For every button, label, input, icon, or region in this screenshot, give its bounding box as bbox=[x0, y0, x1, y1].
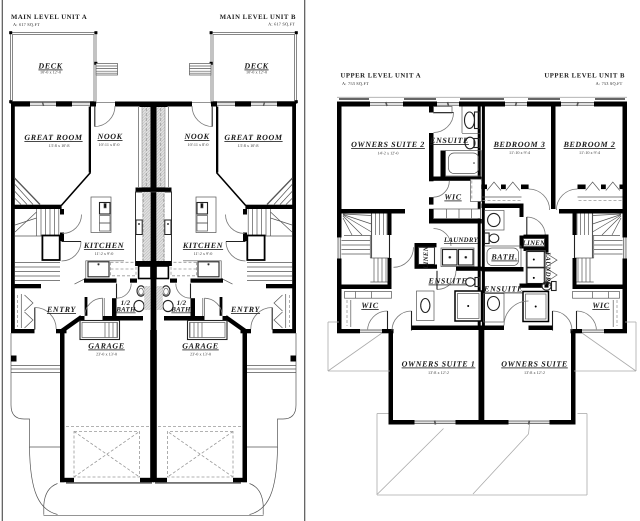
svg-text:ENTRY: ENTRY bbox=[46, 305, 77, 314]
svg-text:GREAT ROOM: GREAT ROOM bbox=[24, 133, 83, 142]
svg-text:GARAGE: GARAGE bbox=[88, 342, 125, 351]
svg-text:OWNERS SUITE: OWNERS SUITE bbox=[501, 360, 568, 369]
svg-text:ENSUITE: ENSUITE bbox=[429, 136, 469, 145]
svg-text:KITCHEN: KITCHEN bbox=[182, 241, 224, 250]
svg-text:A: 617 SQ.FT: A: 617 SQ.FT bbox=[268, 22, 295, 27]
svg-text:13'-8 x 12'-2: 13'-8 x 12'-2 bbox=[428, 370, 449, 375]
svg-text:23'-0 x 13'-0: 23'-0 x 13'-0 bbox=[190, 352, 211, 357]
svg-text:WIC: WIC bbox=[444, 193, 461, 202]
svg-text:10'-0 x 12'-0: 10'-0 x 12'-0 bbox=[246, 70, 267, 75]
svg-text:NOOK: NOOK bbox=[183, 132, 209, 141]
svg-text:10'-0 x 12'-0: 10'-0 x 12'-0 bbox=[40, 70, 61, 75]
svg-text:14'-2 x 12'-0: 14'-2 x 12'-0 bbox=[377, 151, 398, 156]
svg-text:KITCHEN: KITCHEN bbox=[83, 241, 125, 250]
svg-text:BEDROOM 2: BEDROOM 2 bbox=[563, 140, 616, 149]
svg-text:GREAT ROOM: GREAT ROOM bbox=[224, 133, 283, 142]
svg-text:ENSUITE: ENSUITE bbox=[428, 277, 468, 286]
svg-text:WIC: WIC bbox=[361, 301, 378, 310]
svg-text:A: 753 SQ.FT: A: 753 SQ.FT bbox=[596, 81, 623, 86]
svg-text:13'-8 x 10'-8: 13'-8 x 10'-8 bbox=[48, 143, 69, 148]
svg-text:GARAGE: GARAGE bbox=[182, 342, 219, 351]
svg-text:MAIN LEVEL UNIT A: MAIN LEVEL UNIT A bbox=[11, 14, 87, 21]
svg-text:LINEN: LINEN bbox=[522, 240, 546, 247]
svg-text:UPPER LEVEL UNIT A: UPPER LEVEL UNIT A bbox=[341, 73, 422, 80]
svg-text:OWNERS SUITE 1: OWNERS SUITE 1 bbox=[402, 360, 476, 369]
svg-text:BEDROOM 3: BEDROOM 3 bbox=[493, 140, 546, 149]
svg-text:10'-11 x 8'-0: 10'-11 x 8'-0 bbox=[188, 142, 209, 147]
svg-text:LAUNDRY: LAUNDRY bbox=[544, 251, 551, 287]
svg-text:OWNERS SUITE 2: OWNERS SUITE 2 bbox=[351, 140, 425, 149]
svg-text:A: 753 SQ.FT: A: 753 SQ.FT bbox=[342, 81, 369, 86]
svg-text:UPPER LEVEL UNIT B: UPPER LEVEL UNIT B bbox=[544, 73, 625, 80]
svg-text:13'-8 x 10'-8: 13'-8 x 10'-8 bbox=[237, 143, 258, 148]
svg-text:WIC: WIC bbox=[592, 301, 609, 310]
svg-text:A: 617 SQ.FT: A: 617 SQ.FT bbox=[13, 22, 40, 27]
svg-text:MAIN LEVEL UNIT B: MAIN LEVEL UNIT B bbox=[220, 14, 296, 21]
svg-text:13'-8 x 12'-2: 13'-8 x 12'-2 bbox=[524, 370, 545, 375]
svg-text:11'-10 x 9'-4: 11'-10 x 9'-4 bbox=[509, 150, 531, 155]
svg-text:11'-10 x 9'-4: 11'-10 x 9'-4 bbox=[579, 150, 601, 155]
svg-text:ENSUITE: ENSUITE bbox=[483, 285, 523, 294]
svg-text:LINEN: LINEN bbox=[423, 245, 430, 269]
svg-text:LAUNDRY: LAUNDRY bbox=[443, 237, 479, 244]
svg-text:10'-11 x 8'-0: 10'-11 x 8'-0 bbox=[99, 142, 120, 147]
svg-text:BATH: BATH bbox=[170, 307, 191, 314]
svg-text:11'-2 x 9'-0: 11'-2 x 9'-0 bbox=[95, 251, 114, 256]
svg-text:11'-2 x 9'-0: 11'-2 x 9'-0 bbox=[194, 251, 213, 256]
svg-text:23'-0 x 13'-0: 23'-0 x 13'-0 bbox=[96, 352, 117, 357]
svg-text:NOOK: NOOK bbox=[96, 132, 122, 141]
svg-text:BATH: BATH bbox=[115, 307, 136, 314]
svg-text:ENTRY: ENTRY bbox=[230, 305, 261, 314]
svg-text:BATH.: BATH. bbox=[490, 253, 517, 262]
